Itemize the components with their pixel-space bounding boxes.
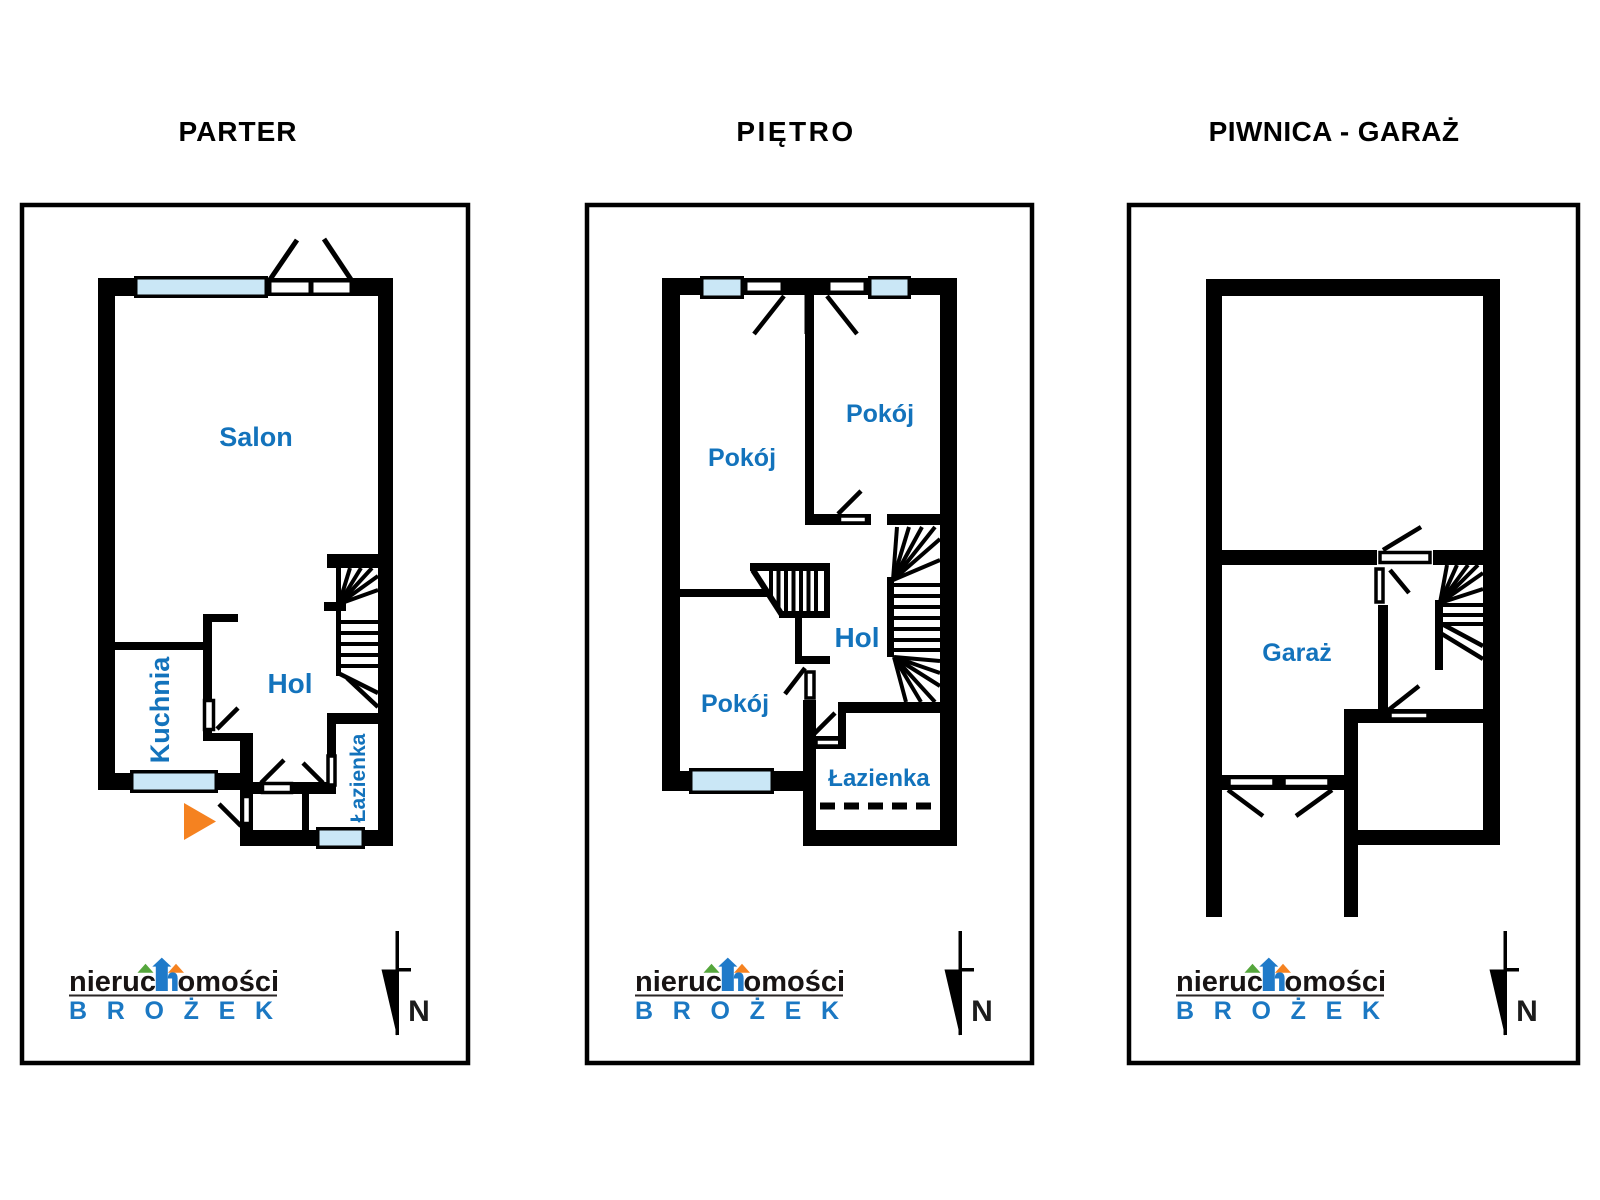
svg-text:Garaż: Garaż	[1262, 639, 1331, 667]
svg-text:nieruc: nieruc	[1176, 966, 1263, 998]
svg-text:Łazienka: Łazienka	[828, 765, 930, 792]
svg-text:PARTER: PARTER	[178, 116, 297, 147]
svg-text:N: N	[408, 995, 430, 1028]
svg-text:Pokój: Pokój	[846, 400, 914, 428]
svg-text:nieruc: nieruc	[635, 966, 722, 998]
svg-text:Pokój: Pokój	[708, 444, 776, 472]
svg-text:PIĘTRO: PIĘTRO	[736, 116, 855, 147]
svg-text:Hol: Hol	[834, 622, 879, 653]
svg-text:omości: omości	[178, 966, 280, 998]
svg-text:BROŻEK: BROŻEK	[1176, 997, 1400, 1025]
svg-text:BROŻEK: BROŻEK	[69, 997, 293, 1025]
svg-text:Kuchnia: Kuchnia	[145, 656, 175, 763]
svg-text:Pokój: Pokój	[701, 690, 769, 718]
svg-text:BROŻEK: BROŻEK	[635, 997, 859, 1025]
svg-text:N: N	[971, 995, 993, 1028]
svg-text:omości: omości	[1285, 966, 1387, 998]
svg-text:Salon: Salon	[219, 422, 293, 452]
svg-text:nieruc: nieruc	[69, 966, 156, 998]
svg-text:omości: omości	[744, 966, 846, 998]
svg-text:N: N	[1516, 995, 1538, 1028]
svg-text:Łazienka: Łazienka	[347, 733, 370, 822]
svg-text:Hol: Hol	[267, 668, 312, 699]
svg-text:PIWNICA - GARAŻ: PIWNICA - GARAŻ	[1209, 116, 1460, 147]
